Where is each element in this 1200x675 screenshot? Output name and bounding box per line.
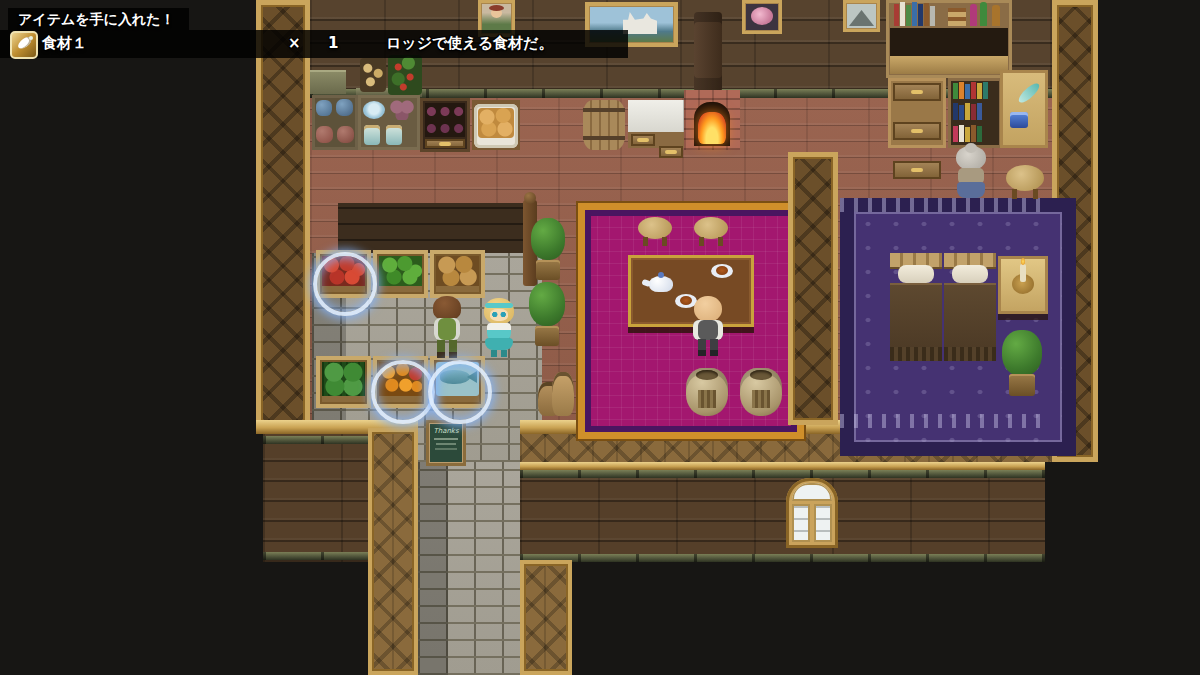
green-trim [520, 470, 1045, 478]
stool [694, 217, 728, 247]
stand-tomatoes[interactable] [316, 250, 371, 298]
bottle [970, 4, 977, 26]
ceramic-jar [686, 368, 728, 416]
girl-headband [485, 303, 513, 308]
window [786, 478, 838, 548]
portrait-hair [489, 5, 504, 11]
painting-mountain [843, 0, 880, 32]
kitchen-counter [628, 100, 686, 148]
purple-jars [389, 100, 415, 120]
bed-blanket [890, 283, 942, 361]
ceramic-jar [740, 368, 782, 416]
chest-drawer [893, 161, 941, 179]
item-name: 食材１ [42, 34, 87, 53]
chalkboard-text: Thanks [430, 427, 462, 435]
sack [552, 372, 574, 416]
radish-leaf [29, 36, 33, 40]
fireplace [684, 90, 740, 150]
rug-border-pattern [840, 198, 1048, 212]
girl-skirt [485, 338, 513, 350]
blue-jar [364, 125, 380, 145]
bookshelf-top [886, 0, 1012, 78]
lady-skirt [957, 182, 985, 198]
bed-pillow [898, 265, 934, 283]
plant-leaves [529, 282, 565, 326]
chalkboard-sign[interactable]: Thanks [426, 420, 466, 466]
fish-tail [467, 371, 477, 383]
chest-drawer [893, 122, 941, 140]
book-row [894, 2, 946, 26]
gold-strip [520, 462, 1045, 470]
book-row [953, 103, 997, 120]
chalk-scribble [434, 438, 458, 440]
blanket-fringe [944, 347, 996, 361]
post-knob [524, 192, 536, 204]
plant-barrel [1009, 374, 1035, 396]
chalk-scribble [436, 443, 456, 445]
exterior-wall-left [263, 434, 368, 562]
window-pane-left [792, 504, 810, 542]
fish-body [440, 370, 470, 384]
radish-icon [10, 31, 38, 59]
counter-top [628, 100, 686, 132]
stand-potatoes [430, 250, 485, 298]
chalkboard-surface: Thanks [430, 424, 462, 462]
rack-drawer [425, 139, 465, 148]
teacup-saucer [711, 264, 733, 278]
writing-desk [1000, 70, 1048, 148]
bed-pillow [952, 265, 988, 283]
teapot-lid [658, 272, 664, 278]
potted-plant [529, 282, 565, 348]
npc-old-lady[interactable] [952, 146, 990, 200]
window-pane-arch [792, 483, 832, 501]
shelf-pots [312, 95, 358, 150]
exit-path-shadow [418, 462, 448, 675]
hanging-onions [360, 58, 386, 92]
chest-drawer [893, 83, 941, 101]
porch-pillar-right [520, 560, 572, 675]
bed [890, 253, 942, 361]
blossom-flowers [751, 7, 773, 25]
counter-drawer [659, 146, 683, 158]
watermelons [322, 362, 365, 396]
blanket-fringe [890, 347, 942, 361]
boy-hair [433, 296, 461, 320]
stool-top [1006, 165, 1044, 191]
drawers-chest [888, 78, 946, 148]
plant-barrel [535, 326, 559, 346]
plant-leaves [1002, 330, 1042, 376]
small-counter [310, 70, 346, 94]
blue-jar [386, 125, 402, 145]
rug-border-pattern [840, 414, 1048, 428]
grain-sacks [538, 368, 574, 420]
book-stack [948, 8, 966, 26]
divider-pillar [788, 152, 838, 425]
bread-basket [472, 100, 520, 150]
times-symbol: × [288, 34, 301, 52]
girl-eyes [492, 312, 506, 317]
tomatoes [322, 256, 365, 286]
candle [1020, 264, 1026, 282]
bed [944, 253, 996, 361]
pot-red [316, 126, 333, 143]
teapot-spout [641, 279, 652, 288]
stool [638, 217, 672, 247]
jar-rope [752, 390, 770, 408]
ink-pot [1010, 112, 1028, 128]
wine-bottles [425, 103, 465, 137]
item-quantity: 1 [328, 34, 338, 52]
man-body [693, 320, 723, 340]
pot-red [337, 126, 354, 143]
exterior-wall-front [520, 462, 1045, 562]
nightstand [998, 256, 1048, 314]
chimney [694, 12, 722, 92]
stool-top [638, 217, 672, 239]
lettuce [379, 256, 422, 286]
stool [1006, 163, 1044, 199]
quill-feather [1016, 81, 1043, 105]
barrel-hoop [583, 108, 625, 112]
chalk-scribble [435, 448, 457, 450]
pot-blue [336, 99, 353, 116]
plant-barrel [536, 260, 560, 280]
shelf-recess [890, 28, 1008, 56]
hanging-tomato-vine [388, 55, 422, 95]
item-description: ロッジで使える食材だ。 [386, 34, 553, 53]
bottle [992, 5, 1000, 26]
fish [436, 362, 479, 396]
stand-lettuce [373, 250, 428, 298]
game-viewport[interactable]: Thanks [0, 0, 1200, 675]
stand-oranges[interactable] [373, 356, 428, 408]
potted-plant [1002, 330, 1042, 398]
stool-top [694, 217, 728, 239]
tea [716, 266, 728, 275]
shop-loft-wall [338, 203, 525, 257]
bed-blanket [944, 283, 996, 361]
stool-legs [1012, 189, 1038, 199]
green-trim [520, 554, 1045, 562]
oranges [379, 362, 422, 396]
stand-fish[interactable] [430, 356, 485, 408]
counter-drawer [631, 134, 655, 146]
boy-body [434, 318, 460, 340]
npc-girl[interactable] [482, 298, 516, 358]
man-head [694, 296, 722, 322]
bread-rolls [478, 108, 514, 138]
book-row [953, 125, 997, 142]
bottle [980, 2, 987, 26]
barrel [583, 100, 625, 150]
porch-pillar-left [368, 428, 418, 675]
window-pane-right [814, 504, 832, 542]
stool-legs [699, 237, 723, 246]
plate-stack [363, 101, 385, 119]
fire [698, 112, 726, 144]
painting-blossom [742, 0, 782, 34]
wine-rack [420, 98, 470, 152]
potted-plant [531, 218, 565, 282]
jar-rope [698, 390, 716, 408]
teapot [649, 276, 673, 292]
potatoes [436, 256, 479, 286]
book-row [953, 82, 997, 99]
girl-shoes [491, 350, 507, 357]
npc-boy[interactable] [430, 296, 464, 358]
boy-shoes [437, 352, 457, 358]
left-wall-pillar [256, 0, 310, 434]
barrel-hoop [583, 136, 625, 140]
notification-item-bar: 食材１ × 1 ロッジで使える食材だ。 [0, 30, 628, 58]
plant-leaves [531, 218, 565, 260]
bookshelf-small [948, 78, 1002, 148]
candle-flame [1021, 258, 1025, 265]
green-trim [263, 436, 368, 444]
stand-watermelons [316, 356, 371, 408]
cabinet-tops [890, 56, 1008, 74]
stool-legs [643, 237, 667, 246]
jar-mouth [696, 370, 718, 380]
notification-title-bar: アイテムを手に入れた！ [8, 8, 189, 30]
shelf-dishes [358, 95, 420, 150]
green-trim [263, 552, 368, 560]
man-shoes [698, 350, 718, 356]
npc-bald-man[interactable] [690, 296, 726, 356]
jar-mouth [750, 370, 772, 380]
lady-bun [965, 143, 977, 153]
pot-blue [316, 100, 332, 116]
